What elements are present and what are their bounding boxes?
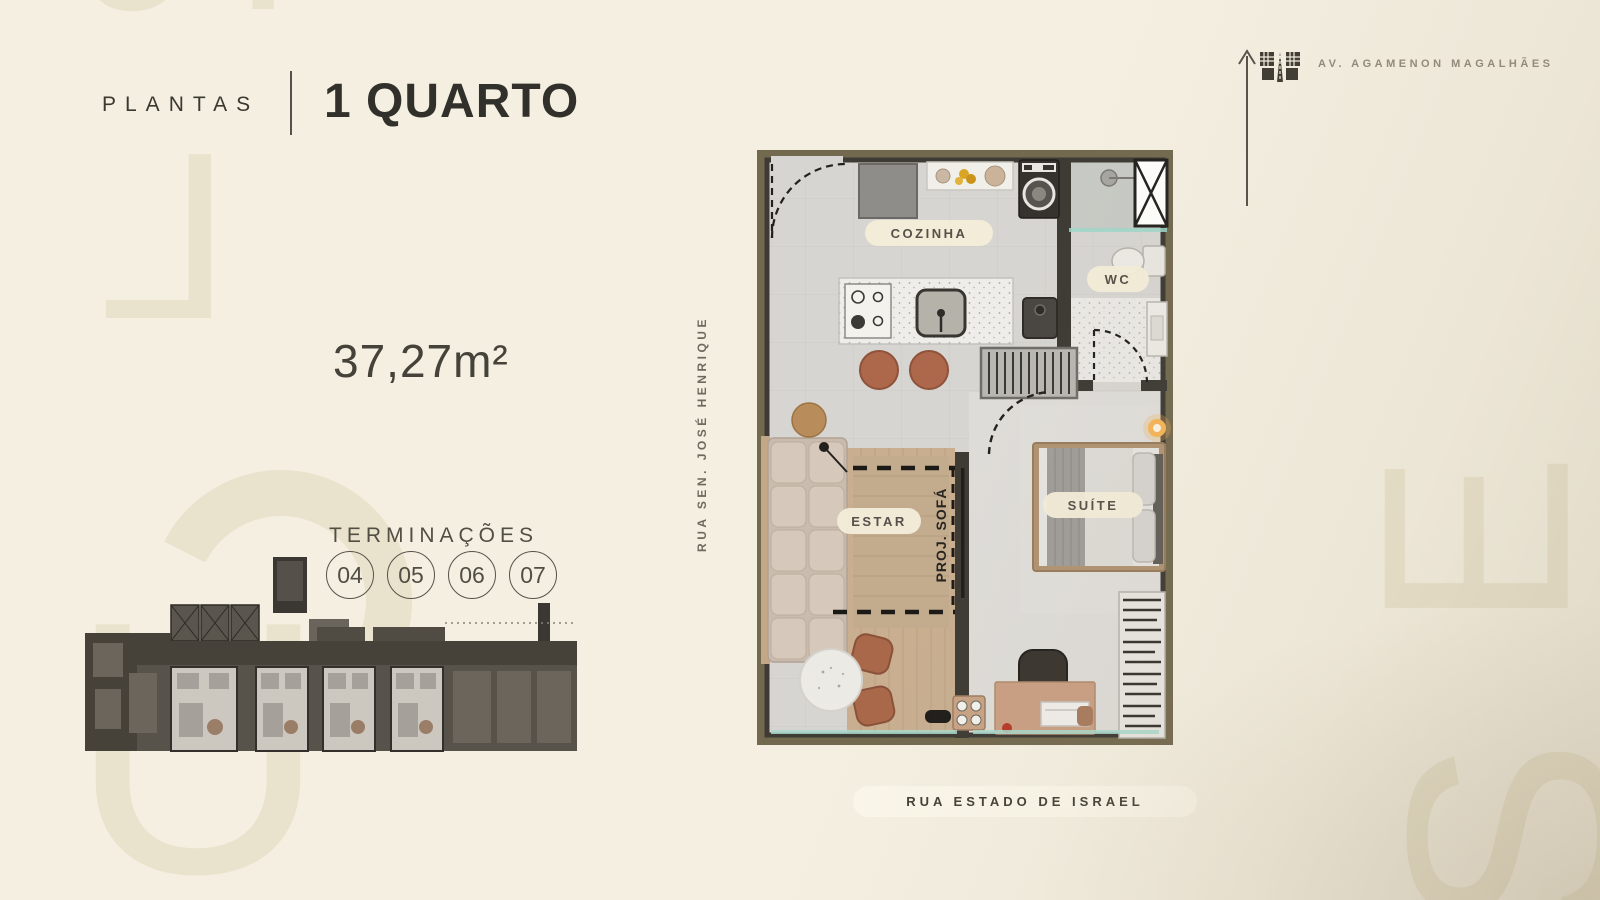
- avenue-icon: [1258, 48, 1302, 84]
- page-title: 1 QUARTO: [324, 74, 579, 129]
- plans-slide: 07 L U E S PLANTAS 1 QUARTO 37,27m² TERM…: [0, 0, 1600, 900]
- wardrobe: [1119, 592, 1165, 738]
- watermark-letter-e: E: [1344, 452, 1600, 629]
- wc-sink: [1147, 302, 1167, 356]
- unit-area: 37,27m²: [333, 334, 509, 388]
- watermark-letter-s: S: [1362, 738, 1600, 900]
- sofa-projection-label: PROJ. SOFÁ: [933, 488, 949, 583]
- street-label-left: RUA SEN. JOSÉ HENRIQUE: [695, 304, 709, 564]
- svg-text:SUÍTE: SUÍTE: [1068, 498, 1119, 513]
- washing-machine: [1019, 160, 1059, 218]
- room-label-bedroom: SUÍTE: [1043, 492, 1143, 518]
- watermark-letter-l: L: [98, 118, 230, 356]
- wall-lamp: [1143, 414, 1171, 442]
- room-label-kitchen: COZINHA: [865, 220, 993, 246]
- room-label-living: ESTAR: [837, 508, 921, 534]
- svg-text:ESTAR: ESTAR: [851, 514, 907, 529]
- north-arrow-icon: [1236, 48, 1258, 210]
- side-cabinet: [1023, 298, 1057, 338]
- avenue-label: AV. AGAMENON MAGALHÃES: [1318, 58, 1554, 70]
- watermark-number: 07: [68, 0, 354, 46]
- svg-text:WC: WC: [1105, 272, 1132, 287]
- stool: [910, 351, 948, 389]
- sofa: [761, 436, 847, 664]
- kitchen-cabinet: [859, 164, 917, 218]
- header-divider: [290, 71, 292, 135]
- section-eyebrow: PLANTAS: [102, 93, 259, 117]
- slat-bench: [981, 348, 1077, 398]
- street-label-bottom: RUA ESTADO DE ISRAEL: [853, 786, 1197, 817]
- ventilation-window: [1135, 160, 1167, 226]
- building-key-plan: [85, 543, 577, 755]
- svg-text:COZINHA: COZINHA: [891, 226, 968, 241]
- room-label-wc: WC: [1087, 266, 1149, 292]
- glass-rail: [973, 730, 1159, 734]
- glass-rail: [771, 730, 957, 734]
- apartment-floorplan: COZINHA WC ESTAR SUÍTE PROJ. SOFÁ: [757, 150, 1173, 745]
- stool: [860, 351, 898, 389]
- kitchen-shelf: [927, 162, 1013, 190]
- kitchen-island: [839, 278, 1013, 344]
